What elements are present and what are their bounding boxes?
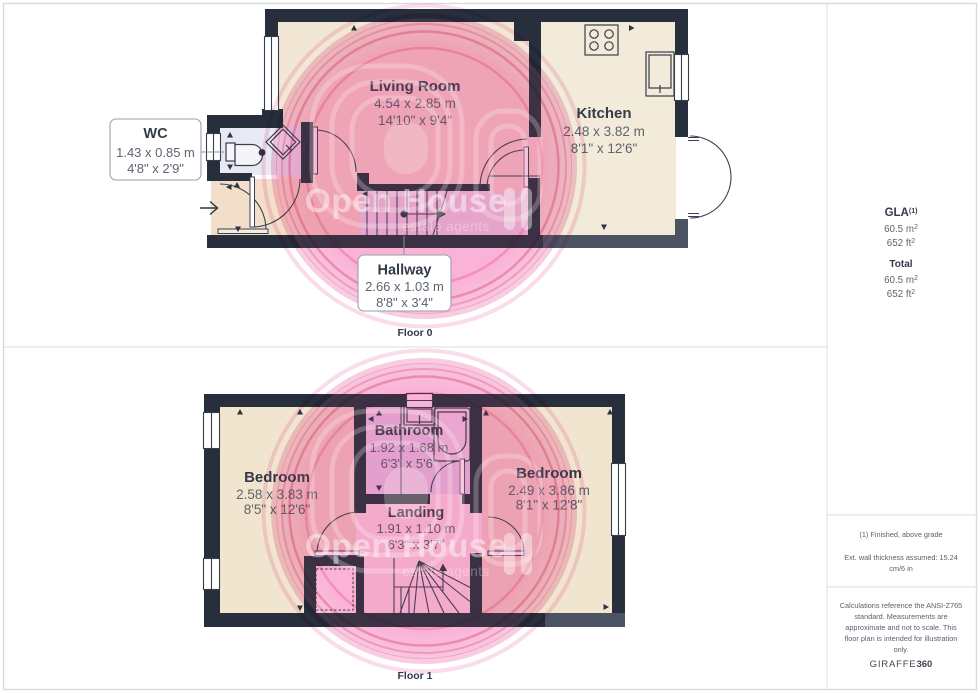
svg-text:60.5 m2: 60.5 m2	[884, 224, 918, 235]
svg-text:Calculations reference the ANS: Calculations reference the ANSI-Z765	[840, 601, 963, 610]
svg-text:cm/6 in: cm/6 in	[889, 564, 913, 573]
svg-text:approximate and not to scale.: approximate and not to scale. This	[845, 623, 957, 632]
svg-text:1.43 x 0.85 m: 1.43 x 0.85 m	[116, 145, 195, 160]
svg-text:2.66 x 1.03 m: 2.66 x 1.03 m	[365, 279, 444, 294]
svg-text:Ext. wall thickness assumed: 1: Ext. wall thickness assumed: 15.24	[844, 553, 958, 562]
svg-text:estate agents: estate agents	[402, 219, 490, 234]
svg-text:Total: Total	[889, 259, 912, 270]
svg-text:60.5 m2: 60.5 m2	[884, 275, 918, 286]
svg-text:652 ft2: 652 ft2	[887, 289, 916, 300]
svg-text:Kitchen: Kitchen	[576, 105, 631, 122]
svg-text:floor plan is intended for ill: floor plan is intended for illustration	[845, 634, 958, 643]
svg-text:WC: WC	[143, 126, 168, 142]
svg-text:standard. Measurements are: standard. Measurements are	[854, 612, 947, 621]
svg-text:estate agents: estate agents	[402, 564, 490, 579]
svg-text:only.: only.	[894, 645, 909, 654]
svg-text:(1) Finished, above grade: (1) Finished, above grade	[859, 530, 942, 539]
svg-text:4'8" x 2'9": 4'8" x 2'9"	[127, 161, 184, 176]
svg-text:8'8" x 3'4": 8'8" x 3'4"	[376, 295, 433, 310]
svg-text:8'1" x 12'6": 8'1" x 12'6"	[571, 141, 638, 156]
svg-text:Open House: Open House	[305, 528, 507, 565]
svg-text:Open House: Open House	[305, 183, 507, 220]
svg-text:Floor 0: Floor 0	[397, 327, 432, 339]
svg-text:652 ft2: 652 ft2	[887, 238, 916, 249]
svg-text:Hallway: Hallway	[378, 263, 432, 279]
svg-text:2.48 x 3.82 m: 2.48 x 3.82 m	[563, 124, 645, 139]
svg-text:Floor 1: Floor 1	[397, 670, 432, 682]
svg-text:GIRAFFE360: GIRAFFE360	[870, 659, 933, 670]
